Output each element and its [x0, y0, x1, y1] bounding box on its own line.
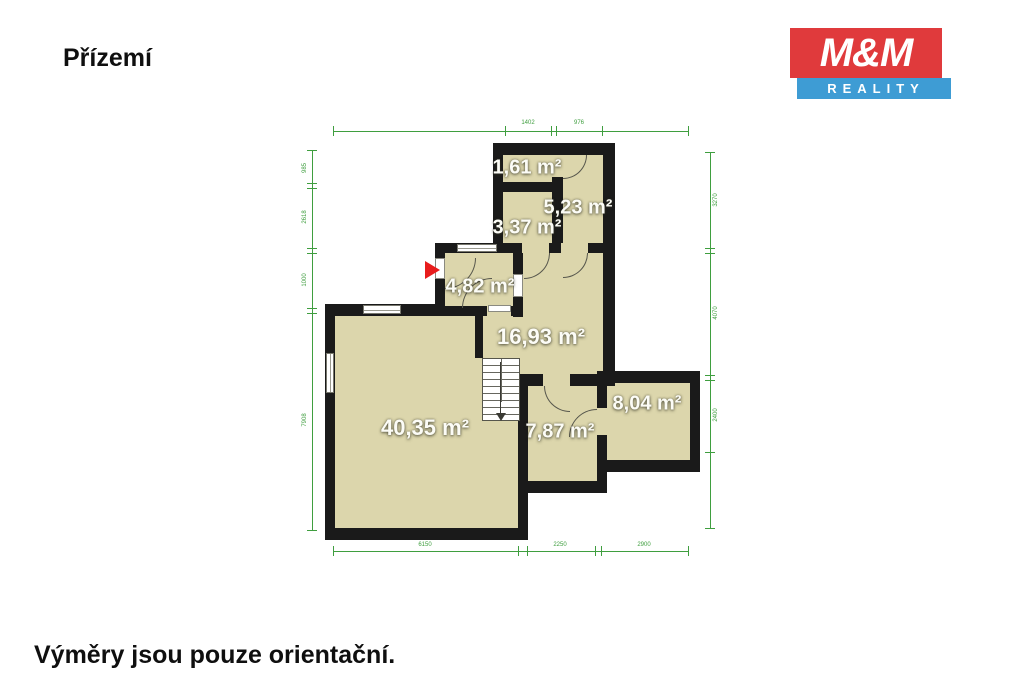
stair-direction-arrow [500, 362, 501, 413]
dim-tick [705, 152, 715, 153]
door-opening [543, 374, 570, 386]
dim-tick [307, 248, 317, 249]
dim-tick [705, 248, 715, 249]
dim-label-right-1: 3270 [713, 193, 719, 206]
mm-reality-logo-text: REALITY [797, 78, 951, 99]
wall [325, 304, 335, 540]
dim-label-bottom-1: 6150 [418, 542, 431, 548]
dim-label-bottom-3: 2900 [637, 542, 650, 548]
door-opening [597, 408, 607, 435]
dim-tick [307, 530, 317, 531]
dim-tick [705, 375, 715, 376]
dim-tick [688, 126, 689, 136]
wall [597, 460, 700, 472]
wall [493, 143, 615, 155]
dim-tick [333, 126, 334, 136]
dim-tick [551, 126, 552, 136]
wall [325, 528, 528, 540]
window [326, 353, 334, 393]
entrance-marker-icon [425, 261, 440, 279]
dim-tick [705, 253, 715, 254]
wall [475, 313, 483, 358]
dim-label-left-1: 985 [302, 163, 308, 173]
dim-label-left-3: 1000 [302, 273, 308, 286]
dimension-line-left [312, 150, 313, 530]
dim-label-top-2: 976 [574, 120, 584, 126]
dim-tick [705, 528, 715, 529]
dim-tick [688, 546, 689, 556]
room-label-7-87: 7,87 m² [526, 421, 595, 444]
wall [690, 371, 700, 472]
dim-tick [705, 380, 715, 381]
wall [493, 243, 615, 253]
dim-tick [518, 546, 519, 556]
door-opening [522, 243, 549, 253]
dim-tick [307, 308, 317, 309]
dimension-line-bottom [333, 551, 688, 552]
dim-tick [527, 546, 528, 556]
disclaimer-text: Výměry jsou pouze orientační. [34, 641, 395, 670]
dim-tick [601, 546, 602, 556]
dim-label-right-2: 4070 [713, 306, 719, 319]
dim-label-left-2: 2618 [302, 210, 308, 223]
staircase [482, 358, 520, 421]
door-opening [561, 243, 588, 253]
dim-tick [556, 126, 557, 136]
stair-arrow-head-icon [496, 413, 506, 421]
room-label-40-35: 40,35 m² [381, 415, 469, 441]
window [457, 244, 497, 252]
dimension-line-right [710, 152, 711, 528]
dim-tick [307, 188, 317, 189]
page-title: Přízemí [63, 44, 152, 73]
dim-label-right-3: 2400 [713, 408, 719, 421]
dim-tick [307, 313, 317, 314]
dim-tick [602, 126, 603, 136]
dim-tick [307, 183, 317, 184]
wall [603, 143, 615, 386]
room-label-8-04: 8,04 m² [613, 393, 682, 416]
dim-tick [705, 452, 715, 453]
mm-reality-logo-mark: M&M [790, 28, 942, 78]
room-label-1-61: 1,61 m² [493, 157, 562, 180]
floor-plan-page: Přízemí M&M REALITY 1402 976 985 2618 10… [0, 0, 1024, 683]
dim-label-left-4: 7908 [302, 413, 308, 426]
dimension-line-top [333, 131, 688, 132]
room-label-3-37: 3,37 m² [493, 217, 562, 240]
wall [597, 371, 700, 383]
dim-tick [333, 546, 334, 556]
dim-tick [307, 150, 317, 151]
dim-tick [307, 253, 317, 254]
dim-label-bottom-2: 2250 [553, 542, 566, 548]
dim-label-top-1: 1402 [521, 120, 534, 126]
room-label-4-82: 4,82 m² [446, 276, 515, 299]
window [363, 305, 401, 314]
dim-tick [505, 126, 506, 136]
dim-tick [595, 546, 596, 556]
wall [518, 481, 607, 493]
room-label-16-93: 16,93 m² [497, 324, 585, 350]
